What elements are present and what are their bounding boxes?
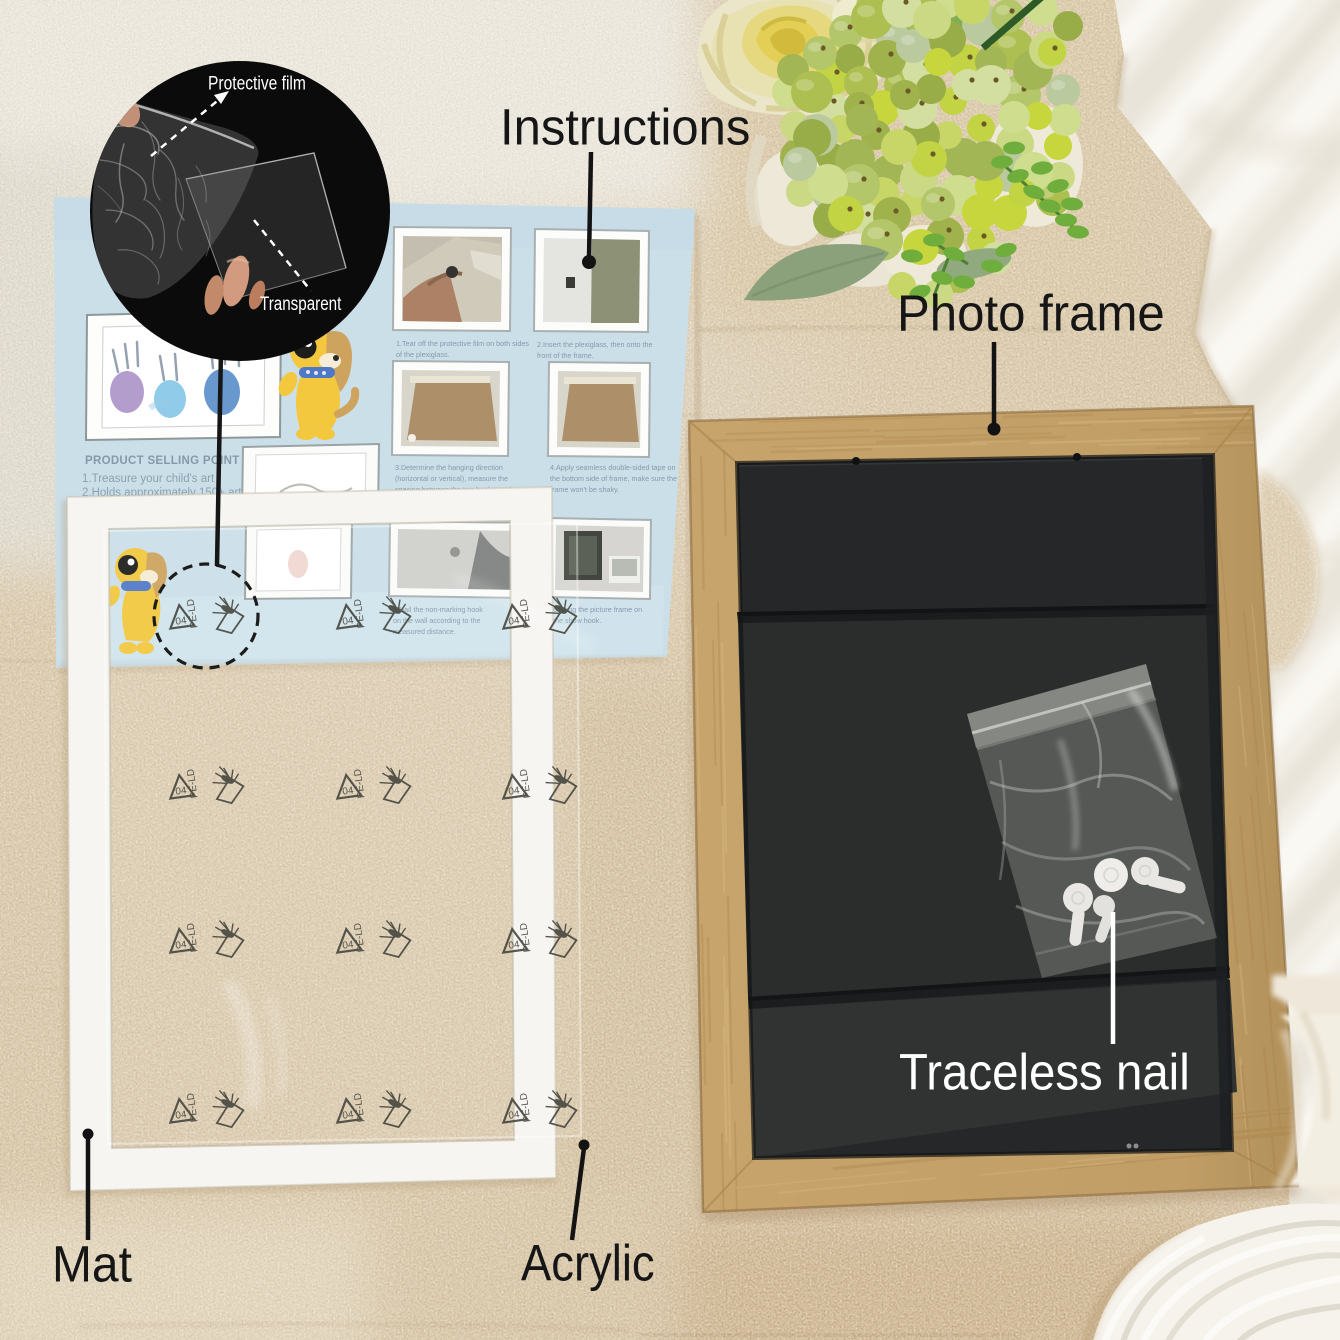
svg-text:of the plexiglass.: of the plexiglass. <box>396 350 450 359</box>
svg-text:04: 04 <box>508 1109 521 1122</box>
svg-text:Protective film: Protective film <box>208 72 306 94</box>
svg-text:04: 04 <box>342 615 355 628</box>
svg-text:Transparent: Transparent <box>260 292 341 314</box>
svg-text:Traceless nail: Traceless nail <box>899 1044 1190 1101</box>
svg-text:04: 04 <box>175 785 188 798</box>
svg-text:1.Tear off the protective film: 1.Tear off the protective film on both s… <box>396 339 529 348</box>
svg-text:3.Determine the hanging direct: 3.Determine the hanging direction <box>395 463 503 472</box>
svg-text:2.Insert the plexiglass, then: 2.Insert the plexiglass, then onto the <box>537 340 652 349</box>
svg-text:the bottom side of frame, make: the bottom side of frame, make sure the <box>550 474 677 483</box>
svg-text:PRODUCT SELLING POINT: PRODUCT SELLING POINT <box>85 455 240 467</box>
svg-text:04: 04 <box>175 1109 188 1122</box>
svg-text:front of the frame.: front of the frame. <box>537 351 594 360</box>
svg-text:04: 04 <box>508 615 521 628</box>
svg-text:4.Apply seamless double-sided: 4.Apply seamless double-sided tape on <box>550 463 675 472</box>
svg-text:04: 04 <box>342 939 355 952</box>
svg-text:(horizontal or vertical), meas: (horizontal or vertical), measure the <box>395 474 508 483</box>
svg-text:Instructions: Instructions <box>500 99 750 156</box>
svg-text:frame won't be shaky.: frame won't be shaky. <box>550 485 619 494</box>
svg-text:04: 04 <box>175 615 188 628</box>
svg-text:Photo frame: Photo frame <box>897 285 1165 342</box>
svg-text:04: 04 <box>175 939 188 952</box>
svg-text:04: 04 <box>508 785 521 798</box>
svg-text:04: 04 <box>342 1109 355 1122</box>
svg-text:04: 04 <box>342 785 355 798</box>
svg-text:Acrylic: Acrylic <box>521 1235 655 1292</box>
svg-text:Mat: Mat <box>52 1236 132 1293</box>
svg-text:1.Treasure your child's art: 1.Treasure your child's art <box>82 473 215 485</box>
svg-text:04: 04 <box>508 939 521 952</box>
